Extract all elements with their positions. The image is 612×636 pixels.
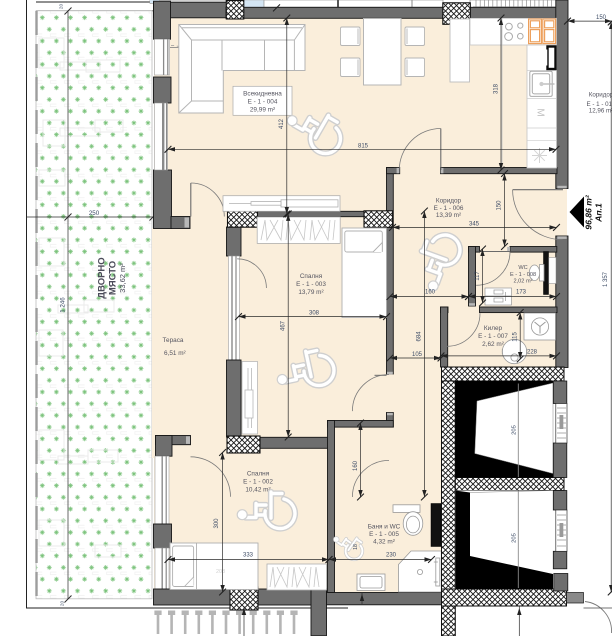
svg-text:250: 250 <box>89 210 100 217</box>
svg-text:173: 173 <box>516 290 527 296</box>
svg-text:E - 1 - 003: E - 1 - 003 <box>296 281 326 288</box>
svg-text:150: 150 <box>497 200 503 211</box>
svg-text:1 246: 1 246 <box>60 297 67 313</box>
svg-text:M: M <box>534 108 545 116</box>
svg-text:117: 117 <box>475 271 481 281</box>
svg-text:1 357: 1 357 <box>603 271 609 287</box>
svg-text:20: 20 <box>59 4 64 10</box>
svg-text:467: 467 <box>280 320 286 331</box>
svg-text:308: 308 <box>309 311 320 317</box>
svg-text:230: 230 <box>386 553 397 559</box>
svg-text:E - 1 - 005: E - 1 - 005 <box>369 531 399 538</box>
svg-text:МЯСТО: МЯСТО <box>108 261 119 295</box>
svg-text:228: 228 <box>527 350 538 356</box>
svg-text:20: 20 <box>60 601 65 607</box>
svg-text:105: 105 <box>412 352 423 358</box>
svg-text:E - 1 - 006: E - 1 - 006 <box>434 205 464 212</box>
svg-text:150: 150 <box>596 15 607 21</box>
svg-text:318: 318 <box>493 83 499 94</box>
svg-text:300: 300 <box>214 518 220 529</box>
svg-text:2,62 m²: 2,62 m² <box>482 341 504 348</box>
svg-text:Коридор: Коридор <box>436 198 462 205</box>
svg-text:Баня и WC: Баня и WC <box>368 524 401 531</box>
svg-text:412: 412 <box>279 118 285 129</box>
svg-text:4,32 m²: 4,32 m² <box>373 539 395 546</box>
svg-text:160: 160 <box>353 460 359 471</box>
svg-text:E - 1 - 007: E - 1 - 007 <box>478 333 508 340</box>
svg-text:Спалня: Спалня <box>247 471 270 478</box>
svg-text:18: 18 <box>353 544 359 550</box>
svg-text:333: 333 <box>243 553 254 559</box>
svg-text:115: 115 <box>512 332 518 342</box>
svg-text:E - 1 - 008: E - 1 - 008 <box>510 272 536 278</box>
svg-text:Ап.1: Ап.1 <box>594 203 604 223</box>
svg-text:12,96 m²: 12,96 m² <box>589 108 612 115</box>
svg-text:160: 160 <box>425 290 436 296</box>
svg-text:ДВОРНО: ДВОРНО <box>97 257 108 298</box>
svg-text:6,51 m²: 6,51 m² <box>164 350 186 357</box>
svg-text:13,79 m²: 13,79 m² <box>298 289 323 296</box>
svg-text:96,86 m²: 96,86 m² <box>584 194 594 230</box>
svg-text:2,02 m²: 2,02 m² <box>514 279 533 285</box>
svg-text:29,99 m²: 29,99 m² <box>250 107 275 114</box>
svg-text:684: 684 <box>417 331 423 342</box>
svg-text:33,62 m²: 33,62 m² <box>118 263 127 293</box>
svg-text:WC: WC <box>518 265 527 271</box>
svg-text:208: 208 <box>216 569 225 575</box>
svg-text:Килер: Килер <box>484 325 503 332</box>
svg-text:E - 1 - 004: E - 1 - 004 <box>248 99 278 106</box>
svg-text:Всекидневна: Всекидневна <box>243 91 282 98</box>
svg-text:205: 205 <box>512 425 518 435</box>
svg-text:815: 815 <box>358 143 369 149</box>
svg-text:205: 205 <box>512 533 518 543</box>
svg-text:345: 345 <box>469 221 480 227</box>
svg-text:10,42 m²: 10,42 m² <box>245 487 270 494</box>
svg-text:Тераса: Тераса <box>163 337 184 344</box>
svg-text:Спалня: Спалня <box>300 273 323 280</box>
svg-text:E - 1 - 002: E - 1 - 002 <box>243 479 273 486</box>
svg-text:13,39 m²: 13,39 m² <box>436 212 461 219</box>
svg-text:Коридор: Коридор <box>589 92 612 99</box>
